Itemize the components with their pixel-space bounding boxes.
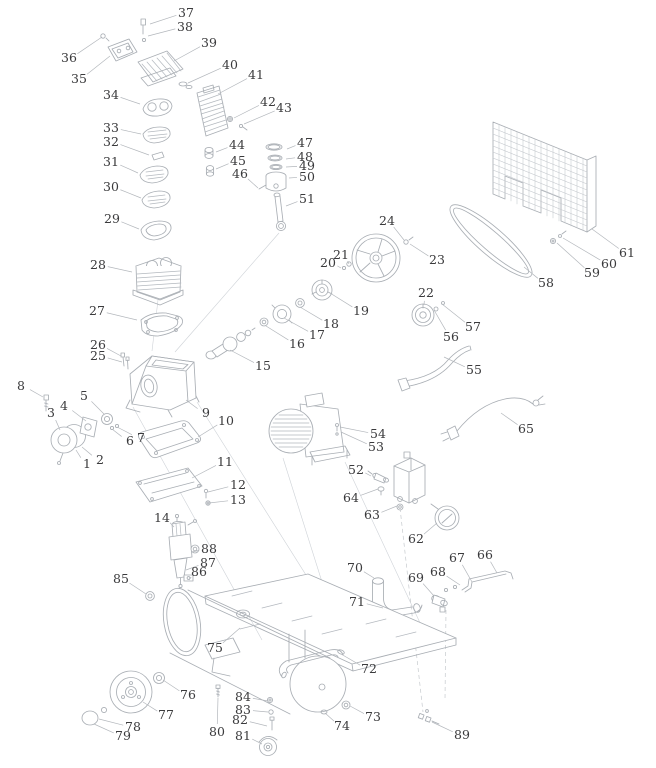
leader-line-85 [130, 583, 146, 594]
part-label-76: 76 [180, 687, 196, 702]
leader-line-80 [217, 698, 218, 724]
part-label-52: 52 [348, 462, 364, 477]
leader-line-43 [244, 111, 275, 124]
leader-line-15 [230, 350, 254, 363]
part-label-33: 33 [103, 120, 119, 135]
leader-line-48 [286, 158, 295, 159]
part-label-3: 3 [47, 405, 55, 420]
leader-line-60 [563, 238, 600, 260]
part-label-34: 34 [103, 87, 119, 102]
leader-line-37 [150, 15, 176, 24]
part-89-drain-valve [418, 710, 439, 724]
part-27-gasket [141, 313, 183, 336]
part-label-61: 61 [619, 245, 635, 260]
part-39-head-cover [138, 51, 183, 86]
leader-line-10 [198, 425, 217, 437]
part-label-16: 16 [289, 336, 305, 351]
leader-line-42 [234, 105, 259, 118]
pressure-switch [394, 452, 425, 503]
part-label-64: 64 [343, 490, 359, 505]
part-label-44: 44 [229, 137, 245, 152]
part-label-55: 55 [466, 362, 482, 377]
part-53-motor [269, 393, 350, 465]
leader-line-30 [120, 190, 141, 198]
part-label-62: 62 [408, 531, 424, 546]
part-22-pulley [412, 304, 434, 326]
leader-line-33 [121, 130, 141, 134]
part-78-79-hubcap [82, 707, 107, 725]
part-label-66: 66 [477, 547, 493, 562]
part-label-37: 37 [178, 5, 194, 20]
leader-line-8 [30, 390, 43, 397]
part-label-63: 63 [364, 507, 380, 522]
part-23-24-bolt [404, 237, 413, 244]
part-label-12: 12 [230, 477, 246, 492]
part-16-washer [260, 318, 268, 326]
part-label-8: 8 [17, 378, 25, 393]
part-50-piston [259, 172, 286, 191]
flywheel [352, 234, 400, 282]
leader-line-27 [107, 313, 137, 320]
part-51-connecting-rod [274, 193, 286, 231]
part-85-nut [146, 592, 155, 601]
leader-line-47 [287, 146, 296, 149]
leader-line-9 [186, 400, 198, 409]
part-label-38: 38 [177, 19, 193, 34]
part-80-bolt [216, 685, 220, 697]
part-label-40: 40 [222, 57, 238, 72]
part-label-47: 47 [297, 135, 313, 150]
part-label-6: 6 [126, 433, 134, 448]
part-label-53: 53 [368, 439, 384, 454]
part-label-5: 5 [80, 388, 88, 403]
part-58-belt [442, 196, 540, 286]
part-40-clip [179, 82, 192, 89]
part-1-8-air-filter [44, 395, 119, 465]
leader-line-4 [72, 411, 86, 421]
exploded-parts-diagram: 1234567891011121314151617181920212223242… [0, 0, 656, 768]
leader-line-82 [250, 722, 267, 726]
part-label-39: 39 [201, 35, 217, 50]
part-label-67: 67 [449, 550, 465, 565]
part-25-26-bolts [121, 353, 129, 369]
part-59-60-fasteners [550, 231, 566, 244]
part-32-reed [152, 152, 164, 160]
leader-line-78 [99, 719, 123, 725]
part-label-31: 31 [103, 154, 119, 169]
leader-line-68 [447, 576, 460, 585]
part-label-74: 74 [334, 718, 350, 733]
diagram-canvas: 1234567891011121314151617181920212223242… [0, 0, 656, 768]
leader-line-32 [120, 145, 149, 155]
leader-line-51 [286, 202, 298, 206]
part-77-wheel [110, 671, 152, 713]
part-label-84: 84 [235, 689, 251, 704]
part-label-77: 77 [158, 707, 174, 722]
leader-line-63 [381, 506, 397, 512]
part-61-belt-guard [493, 122, 596, 232]
leader-line-25 [108, 358, 122, 362]
part-label-65: 65 [518, 421, 534, 436]
part-label-43: 43 [276, 100, 292, 115]
part-47-49-piston-rings [266, 144, 282, 170]
part-label-60: 60 [601, 256, 617, 271]
leader-line-76 [163, 680, 179, 691]
part-label-89: 89 [454, 727, 470, 742]
part-label-21: 21 [333, 247, 349, 262]
part-17-seal-flange [272, 305, 292, 323]
part-label-30: 30 [103, 179, 119, 194]
leader-line-74 [325, 713, 334, 721]
part-29-gasket [141, 221, 171, 240]
part-label-72: 72 [361, 661, 377, 676]
part-label-15: 15 [255, 358, 271, 373]
part-label-19: 19 [353, 303, 369, 318]
part-label-13: 13 [230, 492, 246, 507]
part-69-elbow-fitting [431, 594, 448, 612]
part-label-29: 29 [104, 211, 120, 226]
leader-line-1 [76, 450, 81, 458]
part-15-crankshaft [206, 328, 255, 359]
leader-line-40 [188, 68, 221, 83]
leader-line-36 [77, 37, 102, 54]
part-10-gasket-plate [138, 421, 200, 458]
part-label-9: 9 [202, 405, 210, 420]
part-label-79: 79 [115, 728, 131, 743]
part-label-83: 83 [235, 702, 251, 717]
leader-line-70 [364, 572, 374, 578]
leader-line-73 [350, 706, 364, 714]
part-52-unloader-fitting [368, 471, 389, 483]
part-label-85: 85 [113, 571, 129, 586]
part-label-41: 41 [248, 67, 264, 82]
part-62-gauge [431, 504, 459, 530]
leader-line-23 [410, 244, 428, 256]
part-label-56: 56 [443, 329, 459, 344]
leader-line-54 [340, 427, 368, 433]
leader-line-52 [365, 473, 371, 476]
part-9-crankcase [126, 356, 199, 417]
part-label-46: 46 [232, 166, 248, 181]
part-label-80: 80 [209, 724, 225, 739]
part-label-42: 42 [260, 94, 276, 109]
leader-line-34 [121, 97, 140, 104]
part-label-87: 87 [200, 555, 216, 570]
leader-line-61 [592, 229, 619, 248]
part-28-cylinder [133, 258, 183, 306]
part-20-21-bolt-washer [342, 262, 351, 270]
leader-line-38 [148, 29, 175, 36]
part-label-35: 35 [71, 71, 87, 86]
leader-line-65 [501, 413, 518, 425]
leader-line-39 [174, 47, 200, 61]
part-33-valve-plate [143, 127, 170, 143]
part-55-pipe [398, 346, 471, 391]
leader-line-11 [192, 465, 216, 478]
part-label-51: 51 [299, 191, 315, 206]
leader-line-62 [424, 523, 437, 534]
part-label-24: 24 [379, 213, 395, 228]
leader-line-45 [216, 164, 229, 169]
leader-line-50 [289, 177, 297, 178]
part-label-2: 2 [96, 452, 104, 467]
part-label-50: 50 [299, 169, 315, 184]
part-label-7: 7 [137, 430, 145, 445]
part-75-tank [158, 574, 456, 714]
part-63-fitting [397, 504, 403, 510]
leader-line-17 [284, 318, 308, 331]
leader-line-66 [491, 562, 497, 573]
part-label-73: 73 [365, 709, 381, 724]
part-76-washer [154, 673, 165, 684]
part-label-28: 28 [90, 257, 106, 272]
leader-line-57 [442, 304, 465, 322]
part-label-26: 26 [90, 337, 106, 352]
part-18-washer [296, 299, 305, 308]
part-label-14: 14 [154, 510, 170, 525]
leader-line-20 [337, 266, 341, 268]
part-34-gasket [143, 99, 172, 116]
part-label-11: 11 [217, 454, 233, 469]
part-label-23: 23 [429, 252, 445, 267]
leader-line-13 [209, 501, 228, 503]
part-label-22: 22 [418, 285, 434, 300]
part-label-4: 4 [60, 398, 68, 413]
part-19-fan-pulley [312, 280, 332, 300]
part-label-59: 59 [584, 265, 600, 280]
leader-line-12 [208, 487, 228, 492]
part-41-cylinder-head [197, 85, 228, 136]
part-label-36: 36 [61, 50, 77, 65]
leader-line-64 [360, 489, 378, 495]
part-label-75: 75 [207, 640, 223, 655]
leader-line-2 [82, 447, 92, 455]
part-label-54: 54 [370, 426, 386, 441]
part-label-58: 58 [538, 275, 554, 290]
leader-line-28 [108, 267, 132, 272]
leader-line-89 [432, 722, 453, 732]
leader-line-16 [266, 326, 288, 340]
leader-line-49 [286, 166, 297, 167]
part-label-27: 27 [89, 303, 105, 318]
leader-line-67 [462, 565, 472, 582]
leader-line-19 [330, 293, 352, 307]
part-label-69: 69 [408, 570, 424, 585]
leader-line-18 [300, 307, 322, 320]
leader-line-56 [434, 310, 446, 330]
leader-line-29 [121, 222, 139, 229]
leader-line-53 [341, 432, 367, 444]
leader-line-31 [120, 165, 138, 173]
leader-line-26 [107, 348, 121, 356]
part-label-81: 81 [235, 728, 251, 743]
leader-line-46 [248, 179, 258, 188]
leader-line-6 [112, 429, 122, 437]
part-label-71: 71 [349, 594, 365, 609]
part-label-68: 68 [430, 564, 446, 579]
leader-line-75 [223, 628, 240, 643]
leader-line-5 [91, 401, 104, 414]
part-11-base-plate [136, 468, 202, 502]
part-label-57: 57 [465, 319, 481, 334]
part-42-43-washer-bolt [227, 116, 247, 130]
leader-line-79 [94, 724, 114, 733]
part-31-valve-plate [140, 166, 168, 183]
part-44-45-fittings [205, 147, 214, 176]
part-64-fitting [378, 487, 384, 495]
part-label-32: 32 [103, 134, 119, 149]
part-35-filter-box [108, 39, 137, 61]
part-56-57-fittings [434, 302, 445, 312]
leader-line-44 [216, 148, 228, 152]
part-label-10: 10 [218, 413, 234, 428]
leader-line-83 [253, 711, 268, 712]
part-label-1: 1 [83, 456, 91, 471]
leader-line-41 [218, 79, 247, 94]
part-73-plug [342, 701, 350, 709]
leader-line-69 [423, 584, 434, 596]
leader-line-35 [87, 56, 110, 74]
part-37-38-bolt [141, 19, 146, 42]
leader-line-55 [444, 357, 465, 367]
leader-line-59 [557, 243, 584, 268]
part-label-88: 88 [201, 541, 217, 556]
part-label-70: 70 [347, 560, 363, 575]
part-30-plate [142, 191, 170, 208]
part-label-18: 18 [323, 316, 339, 331]
leader-line-24 [394, 227, 404, 240]
